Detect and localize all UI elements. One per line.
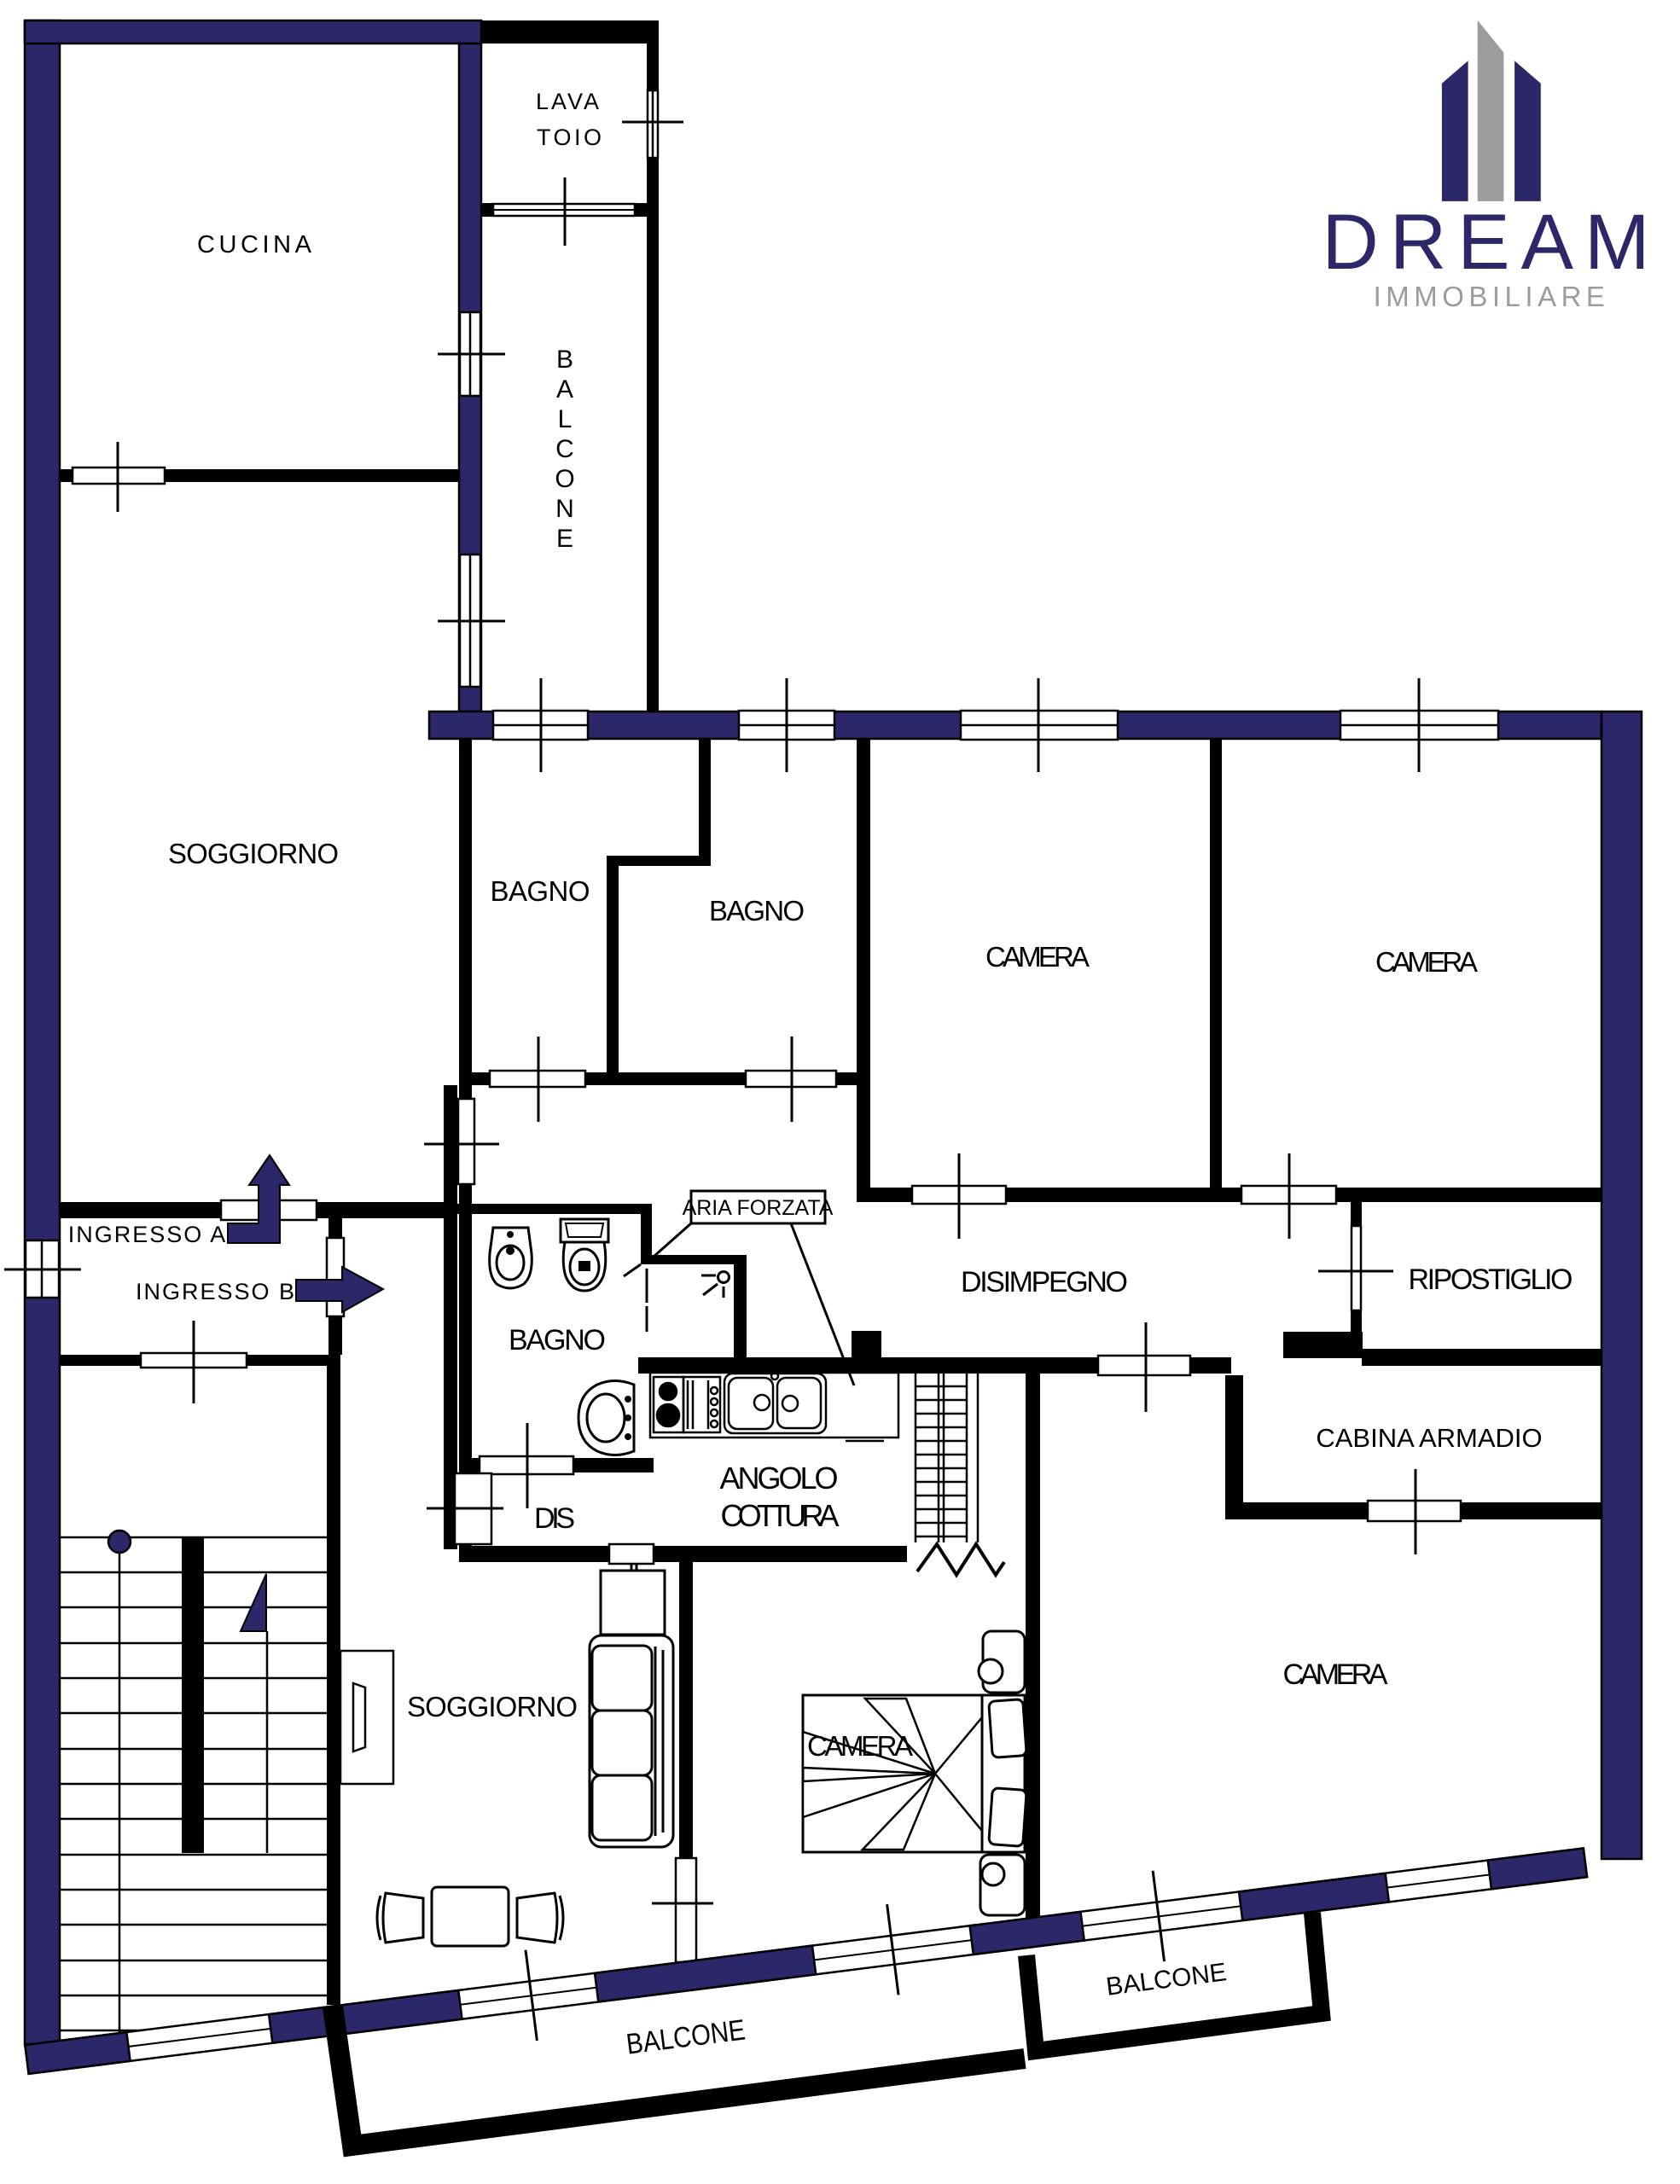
svg-text:CAMERA: CAMERA bbox=[1375, 946, 1478, 978]
svg-text:DISIMPEGNO: DISIMPEGNO bbox=[961, 1266, 1128, 1298]
svg-text:DIS: DIS bbox=[534, 1502, 575, 1535]
svg-text:B: B bbox=[556, 346, 573, 374]
svg-text:BAGNO: BAGNO bbox=[709, 895, 805, 926]
svg-text:ANGOLO: ANGOLO bbox=[720, 1461, 839, 1496]
svg-text:ARIA FORZATA: ARIA FORZATA bbox=[683, 1196, 834, 1220]
svg-text:O: O bbox=[555, 465, 574, 493]
svg-text:SOGGIORNO: SOGGIORNO bbox=[168, 838, 339, 869]
svg-text:INGRESSO B: INGRESSO B bbox=[136, 1279, 296, 1304]
svg-text:RIPOSTIGLIO: RIPOSTIGLIO bbox=[1409, 1263, 1573, 1296]
svg-text:A: A bbox=[556, 375, 573, 404]
svg-text:CAMERA: CAMERA bbox=[807, 1730, 913, 1762]
svg-text:SOGGIORNO: SOGGIORNO bbox=[407, 1691, 578, 1722]
svg-text:L: L bbox=[558, 405, 573, 433]
svg-text:LAVA: LAVA bbox=[536, 89, 599, 114]
svg-text:CAMERA: CAMERA bbox=[1283, 1658, 1388, 1691]
svg-text:BAGNO: BAGNO bbox=[491, 875, 590, 907]
svg-text:IMMOBILIARE: IMMOBILIARE bbox=[1374, 281, 1610, 312]
svg-text:N: N bbox=[555, 495, 574, 523]
svg-text:INGRESSO A: INGRESSO A bbox=[68, 1222, 228, 1247]
svg-text:TOIO: TOIO bbox=[537, 125, 602, 150]
svg-text:CAMERA: CAMERA bbox=[985, 941, 1090, 973]
svg-text:COTTURA: COTTURA bbox=[721, 1498, 840, 1533]
svg-text:BAGNO: BAGNO bbox=[509, 1324, 606, 1356]
svg-text:E: E bbox=[556, 525, 573, 553]
svg-text:CABINA ARMADIO: CABINA ARMADIO bbox=[1316, 1423, 1542, 1453]
svg-text:C: C bbox=[555, 435, 574, 463]
svg-text:CUCINA: CUCINA bbox=[197, 231, 312, 258]
svg-text:DREAM: DREAM bbox=[1322, 199, 1660, 286]
